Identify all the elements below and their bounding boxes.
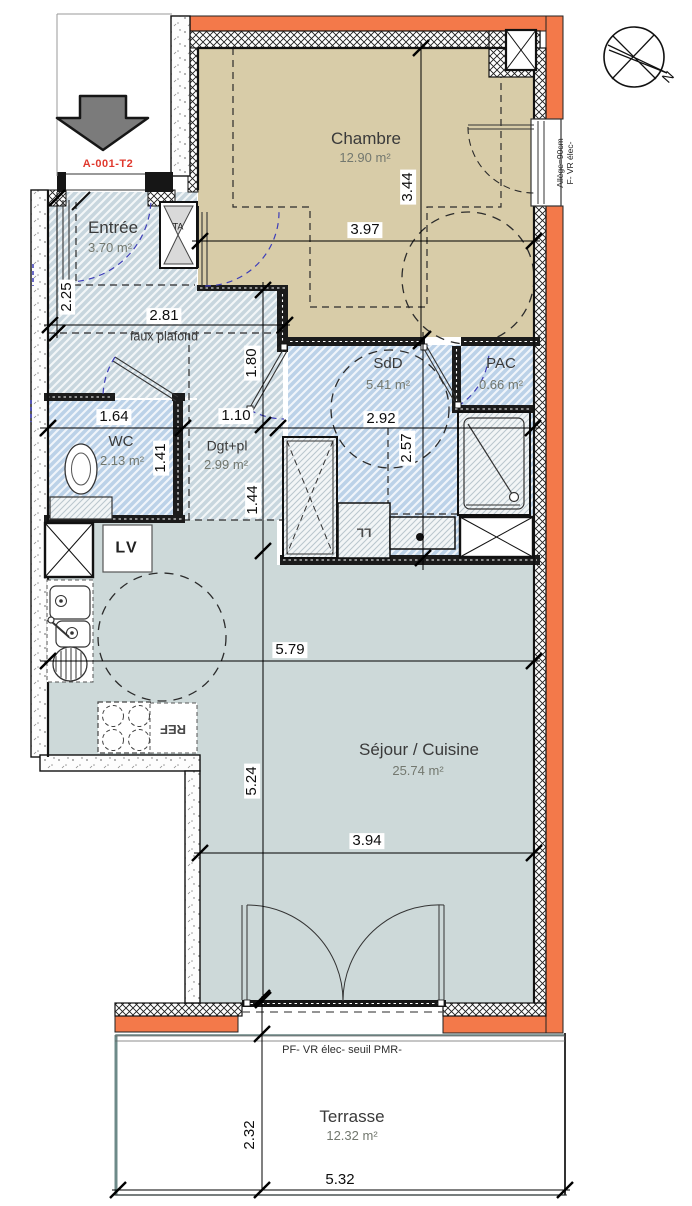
room-label-sejour: Séjour / Cuisine xyxy=(359,741,479,759)
dim-5-32: 5.32 xyxy=(322,1172,357,1188)
entry-arrow-icon xyxy=(57,96,148,150)
window-note: Allège=90cm F- VR élec- xyxy=(556,138,576,187)
dim-1-44: 1.44 xyxy=(245,482,261,517)
dim-5-24: 5.24 xyxy=(244,763,260,798)
window-note-line2: F- VR élec- xyxy=(565,142,575,185)
room-label-entree: Entrée xyxy=(88,219,138,237)
dim-1-41: 1.41 xyxy=(153,440,169,475)
dim-3-97: 3.97 xyxy=(347,222,382,238)
dim-2-57: 2.57 xyxy=(399,430,415,465)
dishwasher-label: LV xyxy=(115,541,138,558)
cooktop-icon xyxy=(98,702,152,753)
wardrobe-icon xyxy=(283,437,337,558)
window-note-line1: Allège=90cm xyxy=(555,138,565,187)
room-area-chambre: 12.90 m² xyxy=(339,151,390,165)
unit-label: A-001-T2 xyxy=(83,159,133,171)
toilet-icon xyxy=(65,444,97,494)
kitchen-sink-icon xyxy=(47,580,93,682)
room-label-terrasse: Terrasse xyxy=(319,1108,384,1126)
dim-2-92: 2.92 xyxy=(363,411,398,427)
dim-2-25: 2.25 xyxy=(59,279,75,314)
dim-1-80: 1.80 xyxy=(244,345,260,380)
floor-plan: Entrée 3.70 m² Chambre 12.90 m² SdD 5.41… xyxy=(0,0,692,1206)
room-area-terrasse: 12.32 m² xyxy=(326,1129,377,1143)
room-area-dgt: 2.99 m² xyxy=(204,458,248,472)
room-label-wc: WC xyxy=(109,434,134,450)
dim-1-64: 1.64 xyxy=(96,409,131,425)
shower-icon xyxy=(458,412,530,515)
floor-plan-graphic xyxy=(0,0,692,1206)
room-label-sdd: SdD xyxy=(373,356,402,372)
fridge-label: REF xyxy=(160,722,186,736)
room-area-pac: 0.66 m² xyxy=(479,378,523,392)
dim-1-10: 1.10 xyxy=(218,408,253,424)
dim-5-79: 5.79 xyxy=(272,642,307,658)
dim-2-81: 2.81 xyxy=(146,308,181,324)
terrace-outline xyxy=(112,1012,567,1195)
dim-3-44: 3.44 xyxy=(400,169,416,204)
washing-machine-label: LL xyxy=(357,526,372,539)
dim-3-94: 3.94 xyxy=(349,833,384,849)
room-area-sejour: 25.74 m² xyxy=(392,764,443,778)
terrace-note: PF- VR élec- seuil PMR- xyxy=(282,1045,402,1057)
dim-2-32: 2.32 xyxy=(242,1117,258,1152)
room-area-wc: 2.13 m² xyxy=(100,454,144,468)
room-label-dgt: Dgt+pl xyxy=(207,439,248,454)
room-label-chambre: Chambre xyxy=(331,130,401,148)
toilet-cistern-icon xyxy=(50,497,112,519)
faux-plafond-note: faux plafond xyxy=(130,330,198,343)
ta-shaft-label: TA xyxy=(173,222,184,231)
room-area-sdd: 5.41 m² xyxy=(366,378,410,392)
north-arrow-icon xyxy=(604,27,667,87)
room-area-entree: 3.70 m² xyxy=(88,241,132,255)
room-label-pac: PAC xyxy=(486,356,516,372)
